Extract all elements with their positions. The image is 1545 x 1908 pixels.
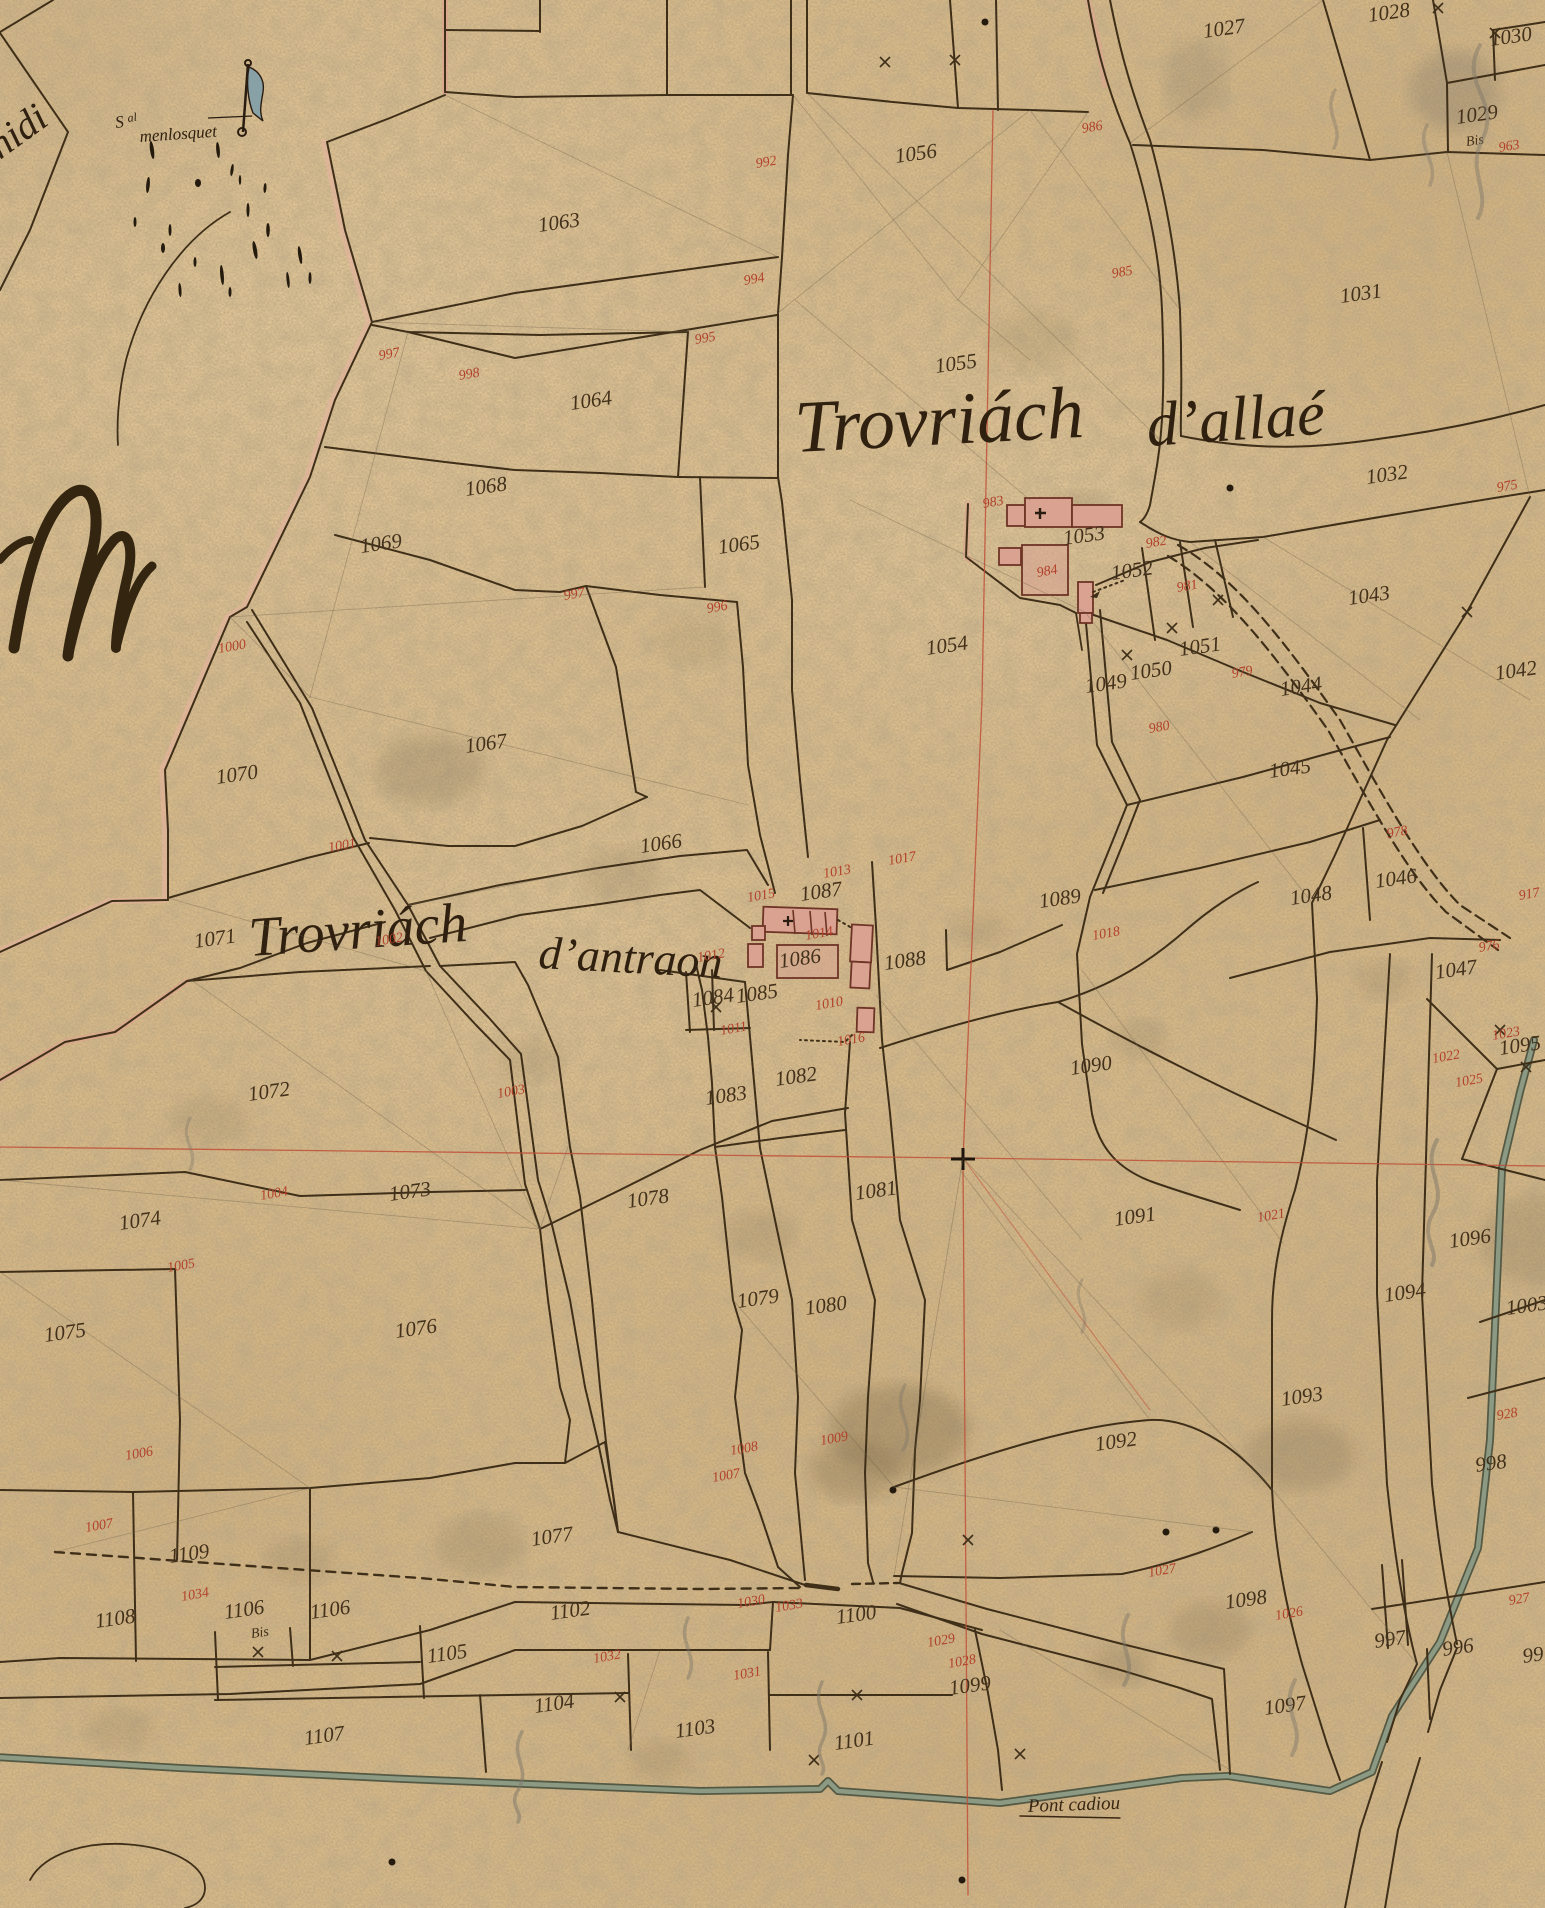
svg-text:996: 996 xyxy=(1441,1633,1476,1661)
svg-text:997: 997 xyxy=(1373,1625,1409,1653)
svg-text:Trovriách: Trovriách xyxy=(793,372,1086,469)
svg-text:99: 99 xyxy=(1521,1641,1545,1668)
svg-text:d’allaé: d’allaé xyxy=(1144,377,1330,459)
svg-text:1003: 1003 xyxy=(1504,1290,1545,1320)
svg-text:998: 998 xyxy=(1474,1449,1509,1477)
svg-text:d’antraon: d’antraon xyxy=(537,927,723,988)
svg-text:Bis: Bis xyxy=(250,1625,270,1642)
svg-text:Pont cadiou: Pont cadiou xyxy=(1026,1793,1120,1817)
